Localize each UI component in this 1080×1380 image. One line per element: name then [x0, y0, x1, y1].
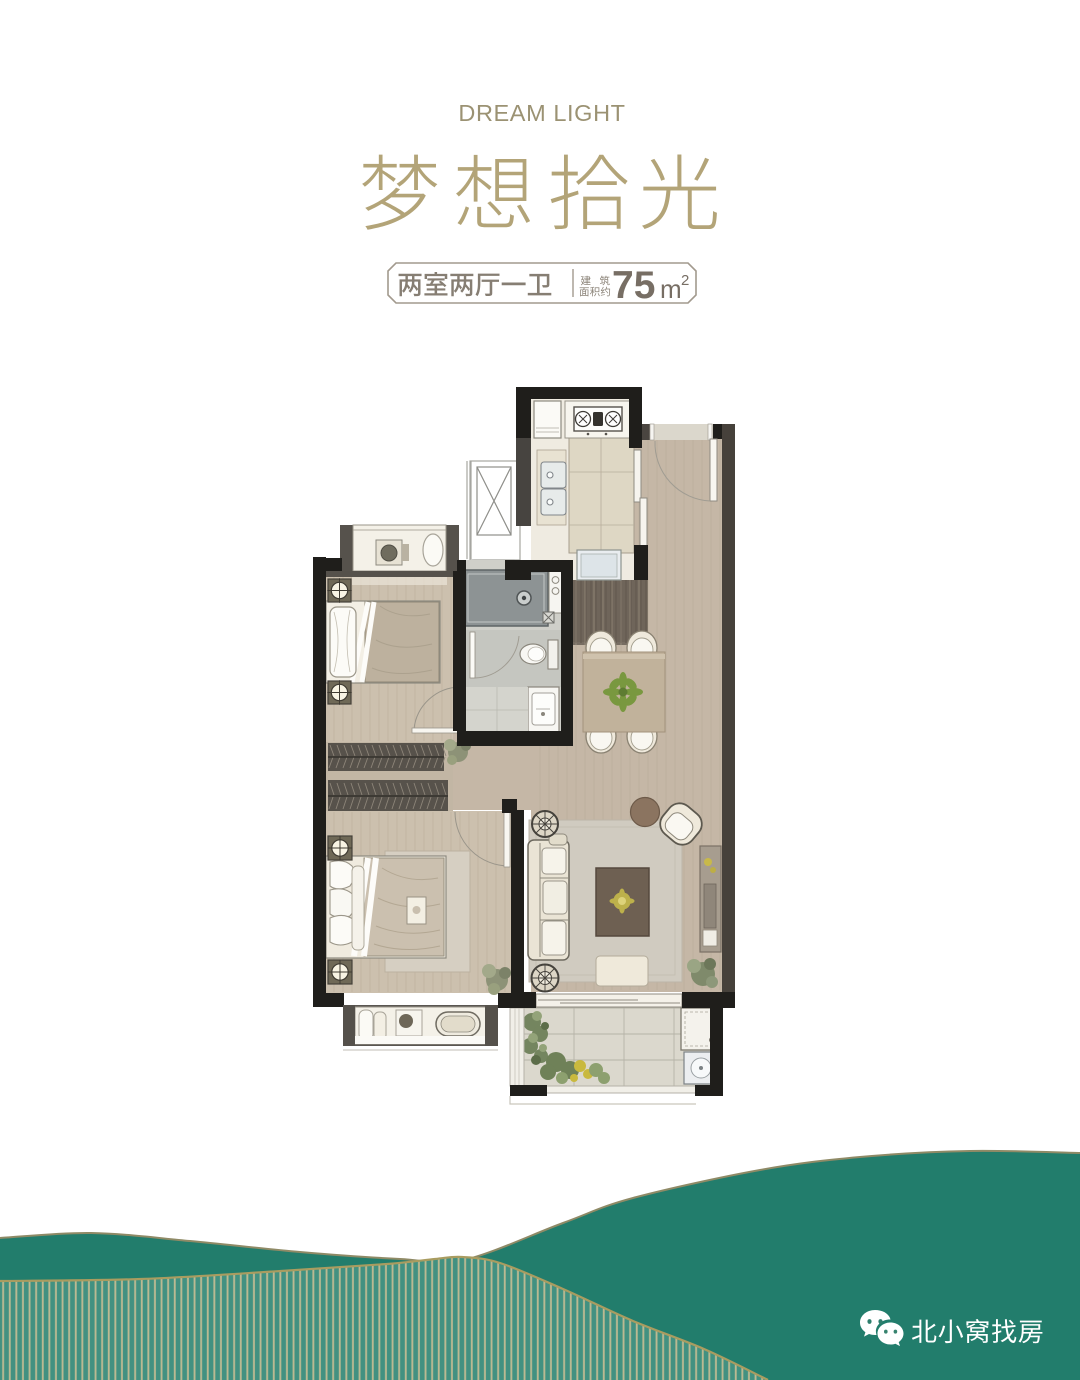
svg-text:2: 2: [681, 272, 689, 289]
svg-text:75: 75: [612, 264, 655, 307]
svg-text:m: m: [660, 274, 682, 304]
